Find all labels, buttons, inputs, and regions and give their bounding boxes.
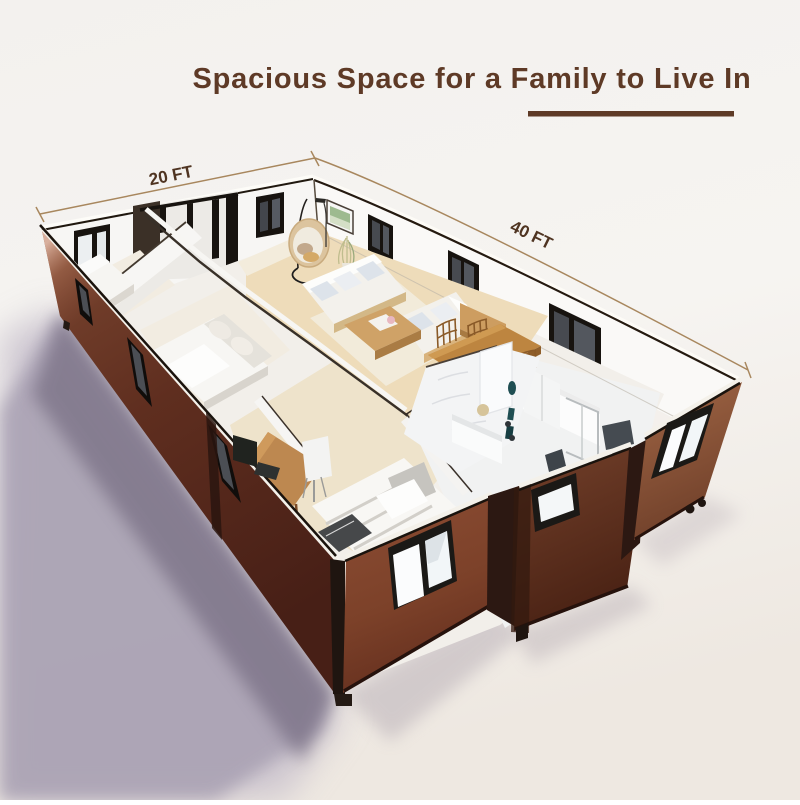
svg-text:Spacious Space for a Family to: Spacious Space for a Family to Live In [193, 63, 752, 95]
